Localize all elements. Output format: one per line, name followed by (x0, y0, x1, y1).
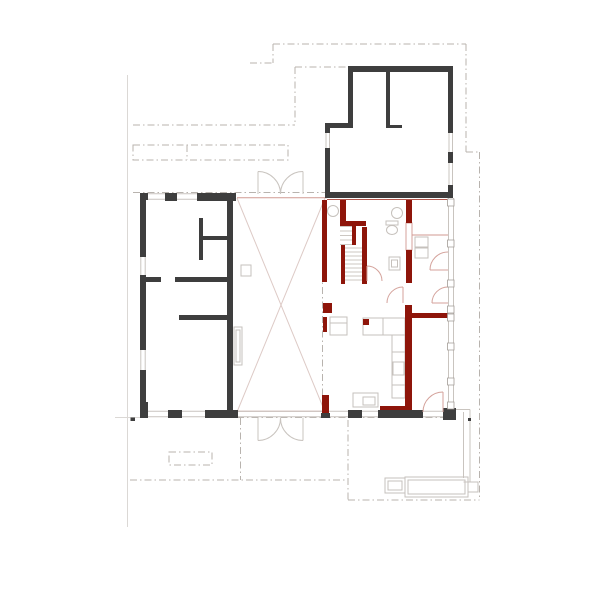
wall-pier (348, 410, 362, 418)
wall-interior (179, 315, 227, 320)
upper-wall-east (448, 152, 453, 163)
red-wall-west (323, 317, 327, 332)
red-wall-east-wing (412, 313, 448, 318)
mullion-mark (448, 240, 455, 247)
planter-box (468, 482, 478, 492)
mullion-mark (448, 306, 455, 313)
washbasin-round (328, 206, 339, 217)
kitchen-sink (363, 397, 375, 405)
red-wall-west (322, 200, 327, 282)
door-swing-arc (258, 418, 281, 441)
wall-west (140, 200, 146, 257)
toilet-tank (386, 221, 398, 225)
upper-wall-interior (386, 125, 402, 128)
stair-wall (340, 200, 346, 223)
mullion-mark (448, 280, 455, 287)
appliance-box (415, 248, 428, 258)
wall-south (378, 410, 423, 418)
upper-wall-north (348, 66, 453, 72)
bath-basin (389, 257, 400, 270)
wall-interior (203, 236, 227, 240)
door-swing-arc (281, 172, 304, 195)
kitchen-counter (363, 318, 405, 335)
planter-box (408, 480, 465, 494)
red-wall-center (405, 305, 412, 412)
floor-plan-page (0, 0, 600, 600)
red-kitchen-block (363, 319, 369, 325)
wall-interior (175, 277, 227, 282)
door-swing-arc (430, 252, 448, 270)
wall-tick (131, 418, 136, 422)
wall-west (140, 275, 146, 350)
bath-basin (392, 260, 398, 267)
hall-column-box (241, 265, 251, 276)
paving-outline (169, 452, 212, 465)
door-swing-arc (281, 418, 304, 441)
wall-corner (140, 193, 148, 200)
bath-wall (406, 250, 412, 283)
mullion-mark (448, 199, 455, 206)
mullion-mark (448, 343, 455, 350)
floor-plan-drawing (0, 0, 600, 600)
mullion-mark (448, 402, 455, 409)
toilet-bowl (387, 226, 398, 235)
upper-wall-west (325, 148, 330, 197)
washbasin-round (392, 208, 403, 219)
stair-wall (341, 245, 345, 284)
wall-pier (321, 413, 330, 418)
kitchen-island (330, 317, 347, 335)
upper-wall-step (325, 123, 353, 128)
bath-wall (406, 200, 412, 223)
wall-corner (443, 408, 456, 420)
wall-north (197, 193, 236, 201)
upper-wall-interior (386, 72, 390, 127)
canopy-outline (133, 145, 288, 160)
kitchen-tall-cabinet (392, 335, 405, 398)
appliance-box (415, 237, 428, 247)
door-swing-arc (367, 266, 382, 281)
wall-interior (199, 218, 203, 260)
door-swing-arc (387, 287, 403, 303)
door-swing-arc (432, 287, 448, 303)
wall-east (227, 200, 233, 412)
stair-wall (362, 227, 367, 284)
wall-interior (146, 277, 161, 282)
bath-door-panel (406, 223, 412, 250)
mullion-mark (448, 378, 455, 385)
door-swing-arc (258, 172, 281, 195)
upper-wall-south (325, 192, 453, 198)
wall-corner (140, 402, 148, 418)
planter-box (388, 481, 402, 490)
interior-window (234, 327, 242, 365)
door-swing-arc (423, 392, 443, 412)
wall-south (205, 410, 238, 418)
mullion-mark (448, 314, 455, 321)
upper-wall-east (448, 66, 453, 133)
wall-pier (168, 410, 182, 418)
stair-wall (352, 221, 356, 245)
kitchen-appliance (393, 362, 404, 375)
upper-wall-west (348, 66, 353, 123)
upper-wall-west (325, 128, 330, 133)
interior-window (236, 330, 240, 362)
wall-pier (165, 193, 177, 201)
red-wall-west (322, 395, 329, 413)
red-pier (323, 303, 332, 313)
wall-tick (468, 418, 471, 421)
